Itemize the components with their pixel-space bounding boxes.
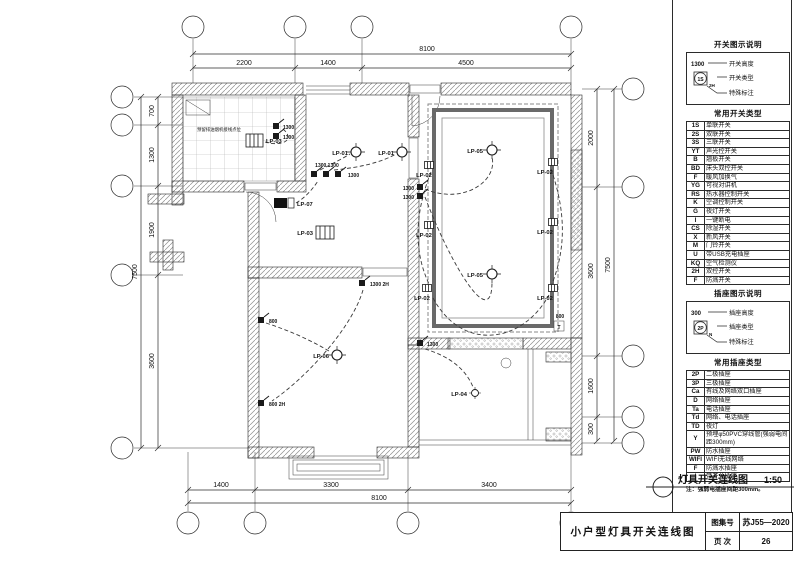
- legend-label: 单联开关: [705, 122, 790, 131]
- legend-label: 一键断电: [705, 216, 790, 225]
- legend-row: 3P三极插座: [687, 379, 790, 388]
- legend-label: 网络、电话插座: [705, 414, 790, 423]
- legend-code: I: [687, 216, 705, 225]
- legend-label: 空气检测仪: [705, 259, 790, 268]
- ceiling-light-lp01: [347, 143, 365, 161]
- floor-plan: 8100 2200 1400 4500 1400 3300 3400 8100 …: [0, 0, 672, 565]
- dim-label: 8100: [371, 495, 387, 502]
- legend-row: X新风开关: [687, 233, 790, 242]
- dim-label: 1600: [588, 378, 595, 394]
- wall-light-lp02: [425, 162, 434, 169]
- legend-label: 双联开关: [705, 130, 790, 139]
- dimensions-top: 8100 2200 1400 4500: [190, 46, 574, 71]
- legend-code: Ca: [687, 388, 705, 397]
- legend-row: Td网络、电话插座: [687, 414, 790, 423]
- drawing-sheet: 8100 2200 1400 4500 1400 3300 3400 8100 …: [0, 0, 798, 565]
- legend-code: M: [687, 242, 705, 251]
- grille-fixture-lp03: [316, 226, 334, 239]
- legend-row: K空调控制开关: [687, 199, 790, 208]
- switch-height: 800: [556, 314, 565, 320]
- legend-label: 有线及网络双口插座: [705, 388, 790, 397]
- atlas-number-label: 图集号: [706, 513, 740, 531]
- switch-height: 1300: [403, 186, 414, 192]
- legend-code: Y: [687, 431, 705, 447]
- dim-label: 3400: [481, 482, 497, 489]
- legend-label: 翘板开关: [705, 156, 790, 165]
- legend-row: M门铃开关: [687, 242, 790, 251]
- legend-code: D: [687, 397, 705, 406]
- dim-label: 700: [149, 105, 156, 117]
- atlas-number-value: 苏J55—2020: [740, 513, 792, 531]
- legend-row: F防溅开关: [687, 276, 790, 285]
- switch-height: 1300: [348, 173, 359, 179]
- switch-type-table: 1S单联开关2S双联开关3S三联开关YT声光控开关B翘板开关BD床头双控开关F暖…: [686, 121, 790, 285]
- switch-height-label: 开关高度: [729, 60, 754, 68]
- socket-key-diagram: 300 插座高度 2P N 插座类型 特殊标注: [687, 302, 789, 348]
- legend-code: U: [687, 250, 705, 259]
- switch-height: 1300: [283, 135, 294, 141]
- fixture-label: LP-07: [297, 202, 313, 208]
- legend-label: 热水器控制开关: [705, 190, 790, 199]
- legend-row: 2P二极插座: [687, 371, 790, 380]
- legend-row: I一键断电: [687, 216, 790, 225]
- legend-label: 电话插座: [705, 405, 790, 414]
- legend-row: Ta电话插座: [687, 405, 790, 414]
- drawing-caption: 灯具开关连线图 1:50: [644, 466, 796, 500]
- legend-row: PW防水插座: [687, 447, 790, 456]
- switch-symbol: [258, 396, 269, 406]
- switch-key-header: 开关图示说明: [683, 39, 793, 50]
- wall-light-lp02: [549, 285, 558, 292]
- legend-row: G夜灯开关: [687, 207, 790, 216]
- dim-label: 1300: [149, 147, 156, 163]
- legend-label: 暖风加换气: [705, 173, 790, 182]
- fixture-label: LP-02: [537, 170, 553, 176]
- legend-code: YG: [687, 182, 705, 191]
- legend-divider-line: [672, 0, 673, 512]
- wall-light-lp02: [549, 219, 558, 226]
- legend-row: 3S三联开关: [687, 139, 790, 148]
- dim-label: 2200: [236, 60, 252, 67]
- dim-label: 3600: [588, 263, 595, 279]
- atlas-row: 图集号 苏J55—2020: [706, 513, 792, 531]
- legend-code: RS: [687, 190, 705, 199]
- dim-label: 4500: [458, 60, 474, 67]
- legend-label: 空调控制开关: [705, 199, 790, 208]
- legend-code: K: [687, 199, 705, 208]
- switch-height: 1300: [427, 342, 438, 348]
- legend-row: 1S单联开关: [687, 122, 790, 131]
- caption-svg: 灯具开关连线图 1:50: [644, 466, 796, 500]
- fixture-label: LP-03: [266, 139, 283, 145]
- fixture-label: LP-01: [332, 151, 349, 157]
- caption-scale: 1:50: [764, 475, 782, 485]
- legend-code: 3S: [687, 139, 705, 148]
- switch-type-label: 开关类型: [729, 74, 754, 82]
- switch-height-value: 1300: [691, 62, 705, 68]
- legend-label: 三联开关: [705, 139, 790, 148]
- switch-height: 800 2H: [269, 402, 286, 408]
- socket-key-header: 插座图示说明: [683, 288, 793, 299]
- drawing-title: 小户型灯具开关连线图: [561, 513, 705, 550]
- page-number-label: 页 次: [706, 532, 740, 550]
- socket-type-label: 插座类型: [729, 323, 754, 331]
- legend-code: CS: [687, 225, 705, 234]
- legend-label: 门铃开关: [705, 242, 790, 251]
- dim-label: 3300: [323, 482, 339, 489]
- legend-code: KQ: [687, 259, 705, 268]
- legend-code: X: [687, 233, 705, 242]
- title-block-right: 图集号 苏J55—2020 页 次 26: [705, 513, 792, 550]
- wall-light-lp02: [425, 222, 434, 229]
- legend-code: WIFI: [687, 456, 705, 465]
- switch-note-label: 特殊标注: [729, 89, 754, 97]
- dim-label: 8100: [419, 46, 435, 53]
- legend-row: WIFIWIFI无线网络: [687, 456, 790, 465]
- dim-label: 2000: [588, 130, 595, 146]
- legend-label: 防溅开关: [705, 276, 790, 285]
- legend-row: CS除湿开关: [687, 225, 790, 234]
- legend-label: 夜灯: [705, 422, 790, 431]
- ceiling-light-lp05: [483, 141, 501, 159]
- legend-label: 三极插座: [705, 379, 790, 388]
- switch-table-header: 常用开关类型: [683, 108, 793, 119]
- kitchen-note: 预留排油烟机接线点位: [197, 126, 242, 133]
- legend-row: TD夜灯: [687, 422, 790, 431]
- grille-fixture-lp03: [246, 134, 263, 147]
- legend-code: BD: [687, 164, 705, 173]
- dimensions-right: 2000 3600 1600 300 7500: [588, 86, 617, 444]
- socket-key-box: 300 插座高度 2P N 插座类型 特殊标注: [686, 301, 790, 354]
- fixture-label: LP-02: [537, 296, 553, 302]
- legend-label: WIFI无线网络: [705, 456, 790, 465]
- legend-code: G: [687, 207, 705, 216]
- legend-label: 双控开关: [705, 268, 790, 277]
- fixture-label: LP-05: [467, 273, 484, 279]
- dim-label: 1400: [320, 60, 336, 67]
- fixture-label: LP-04: [451, 392, 468, 398]
- ceiling-light-lp06: [328, 346, 346, 364]
- dim-label: 1900: [149, 222, 156, 238]
- legend-code: PW: [687, 447, 705, 456]
- legend-code: 2P: [687, 371, 705, 380]
- legend-row: Ca有线及网络双口插座: [687, 388, 790, 397]
- fixture-label: LP-05: [467, 149, 484, 155]
- switch-symbol-code: 1S: [697, 77, 704, 83]
- panel-fixture-lp07: [274, 198, 294, 208]
- socket-height-value: 300: [691, 311, 702, 317]
- switch-height: 800: [269, 319, 278, 325]
- ceiling-light-lp04: [469, 387, 481, 399]
- switch-height: 1300: [403, 195, 414, 201]
- legend-row: F暖风加换气: [687, 173, 790, 182]
- dim-label: 3600: [149, 353, 156, 369]
- switch-height: 1300 1300: [315, 163, 339, 169]
- legend-row: Y预埋φ50PVC穿线管(强弱电间距300mm): [687, 431, 790, 447]
- legend-code: 1S: [687, 122, 705, 131]
- dim-label: 300: [588, 423, 595, 435]
- fixture-label: LP-02: [416, 233, 432, 239]
- legend-label: 夜灯开关: [705, 207, 790, 216]
- ceiling-light-lp01: [393, 143, 411, 161]
- socket-table-header: 常用插座类型: [683, 357, 793, 368]
- legend-code: YT: [687, 147, 705, 156]
- legend-row: YG可视对讲机: [687, 182, 790, 191]
- floor-plan-svg: 8100 2200 1400 4500 1400 3300 3400 8100 …: [0, 0, 672, 565]
- switch-key-box: 1300 开关高度 1S 2H 开关类型 特殊标注: [686, 52, 790, 105]
- legend-code: F: [687, 276, 705, 285]
- switch-symbol-sub: 2H: [709, 83, 716, 88]
- legend-code: 2H: [687, 268, 705, 277]
- legend-code: Ta: [687, 405, 705, 414]
- dim-label: 1400: [213, 482, 229, 489]
- fixture-label: LP-02: [416, 173, 432, 179]
- switch-key-diagram: 1300 开关高度 1S 2H 开关类型 特殊标注: [687, 53, 789, 99]
- switch-height: 1300: [283, 125, 294, 131]
- legend-row: KQ空气检测仪: [687, 259, 790, 268]
- legend-label: 带USB充电插座: [705, 250, 790, 259]
- thermostat-mark: T: [557, 325, 560, 331]
- ceiling-light-lp05: [483, 265, 501, 283]
- socket-note-label: 特殊标注: [729, 338, 754, 346]
- caption-title: 灯具开关连线图: [678, 473, 748, 486]
- legend-label: 可视对讲机: [705, 182, 790, 191]
- fixture-label: LP-06: [313, 354, 330, 360]
- page-row: 页 次 26: [706, 531, 792, 550]
- legend-row: D网络插座: [687, 397, 790, 406]
- fixture-label: LP-02: [414, 296, 430, 302]
- legend-code: B: [687, 156, 705, 165]
- legend-label: 除湿开关: [705, 225, 790, 234]
- dim-label: 7500: [605, 257, 612, 273]
- legend-code: F: [687, 173, 705, 182]
- fixture-label: LP-02: [537, 230, 553, 236]
- switch-symbol: [258, 313, 269, 323]
- fixture-label: LP-03: [297, 231, 314, 237]
- legend-label: 声光控开关: [705, 147, 790, 156]
- title-block: 小户型灯具开关连线图 图集号 苏J55—2020 页 次 26: [560, 512, 793, 551]
- legend-code: 3P: [687, 379, 705, 388]
- legend-label: 网络插座: [705, 397, 790, 406]
- legend-row: BD床头双控开关: [687, 164, 790, 173]
- socket-height-label: 插座高度: [729, 309, 754, 317]
- socket-symbol-sub: N: [709, 332, 713, 337]
- legend-code: Td: [687, 414, 705, 423]
- legend-row: 2H双控开关: [687, 268, 790, 277]
- dim-label: 7500: [132, 264, 139, 280]
- dimensions-bottom: 1400 3300 3400 8100: [185, 482, 574, 506]
- legend-label: 防水插座: [705, 447, 790, 456]
- legend-panel: 开关图示说明 1300 开关高度 1S 2H 开关类型 特殊标注 常用开关类型 …: [683, 36, 793, 495]
- legend-row: 2S双联开关: [687, 130, 790, 139]
- switch-height: 1300 2H: [370, 282, 389, 288]
- wall-light-lp02: [423, 285, 432, 292]
- legend-label: 新风开关: [705, 233, 790, 242]
- page-number-value: 26: [740, 532, 792, 550]
- legend-label: 床头双控开关: [705, 164, 790, 173]
- legend-row: U带USB充电插座: [687, 250, 790, 259]
- dimensions-left: 700 1300 1900 3600 7500: [132, 94, 161, 451]
- legend-code: 2S: [687, 130, 705, 139]
- legend-row: YT声光控开关: [687, 147, 790, 156]
- socket-symbol-code: 2P: [697, 326, 704, 332]
- legend-row: RS热水器控制开关: [687, 190, 790, 199]
- fixture-label: LP-01: [378, 151, 395, 157]
- legend-code: TD: [687, 422, 705, 431]
- legend-label: 预埋φ50PVC穿线管(强弱电间距300mm): [705, 431, 790, 447]
- wall-light-lp02: [549, 159, 558, 166]
- legend-row: B翘板开关: [687, 156, 790, 165]
- legend-label: 二极插座: [705, 371, 790, 380]
